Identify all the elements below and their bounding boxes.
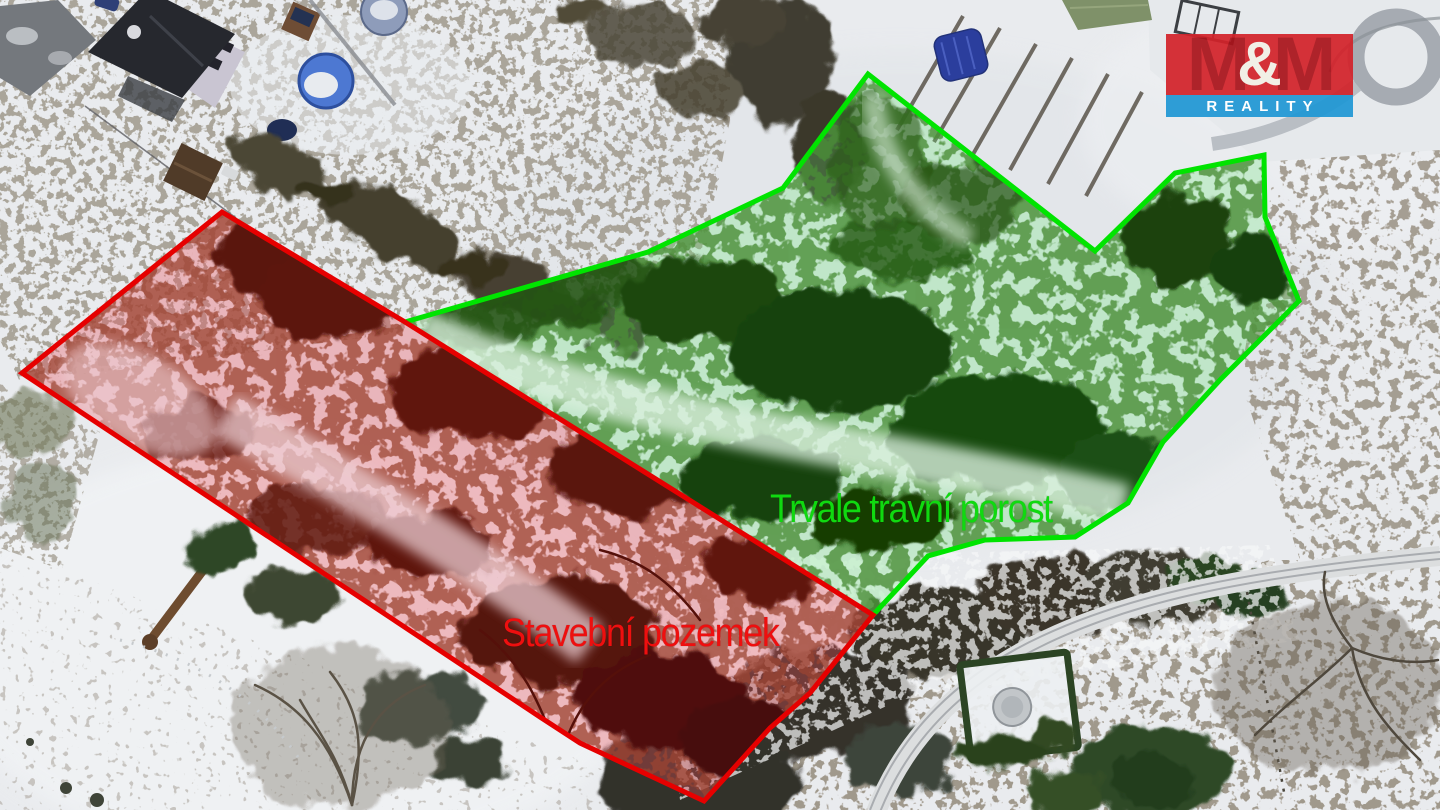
bare-tree-left	[230, 648, 450, 808]
label-grassland: Trvale travní porost	[770, 488, 1052, 530]
aerial-photo: Stavební pozemek Trvale travní porost M …	[0, 0, 1440, 810]
label-building-plot: Stavební pozemek	[502, 612, 779, 654]
satellite-dish	[127, 25, 141, 39]
scene-svg	[0, 0, 1440, 810]
logo-ampersand: &	[1237, 34, 1282, 95]
agency-watermark: M & M REALITY	[1166, 34, 1353, 117]
pool-snow-cover	[304, 72, 338, 98]
logo-reality-bar: REALITY	[1166, 95, 1353, 117]
logo-mm-box: M & M	[1166, 34, 1353, 95]
